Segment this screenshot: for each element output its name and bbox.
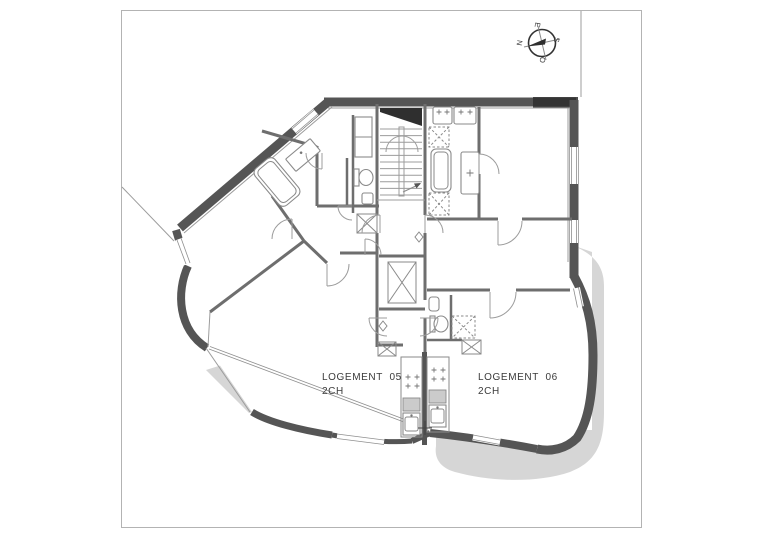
hand-basin-icon <box>362 193 373 204</box>
kitchen-sink-icon <box>403 413 420 435</box>
site-boundary-diagonal <box>122 187 174 241</box>
unit06-name: LOGEMENT 06 <box>478 372 558 383</box>
drawing-sheet: LOGEMENT 05 2CH LOGEMENT 06 2CH N E S O <box>0 0 764 540</box>
compass-e: E <box>533 22 543 29</box>
compass-rose: N E S O <box>515 22 562 64</box>
compass-n: N <box>515 39 525 46</box>
compass-o: O <box>538 56 548 63</box>
sink-icon <box>433 107 452 124</box>
sink-icon <box>454 107 476 124</box>
window-right-2 <box>572 220 577 243</box>
bathtub-icon <box>431 149 451 192</box>
unit05-rooms: 2CH <box>322 386 344 397</box>
kitchen-sink-icon <box>429 405 446 427</box>
floor-plan-svg: LOGEMENT 05 2CH LOGEMENT 06 2CH N E S O <box>0 0 764 540</box>
vanity-icon <box>461 152 479 194</box>
hand-basin-icon <box>429 297 439 311</box>
window-right-1 <box>572 147 577 184</box>
unit06-rooms: 2CH <box>478 386 500 397</box>
compass-s: S <box>552 37 562 44</box>
counter-icon <box>429 390 446 403</box>
unit05-name: LOGEMENT 05 <box>322 372 402 383</box>
toilet-icon <box>354 169 373 186</box>
counter-icon <box>403 398 420 411</box>
shower-cabinet-icon <box>355 117 372 157</box>
